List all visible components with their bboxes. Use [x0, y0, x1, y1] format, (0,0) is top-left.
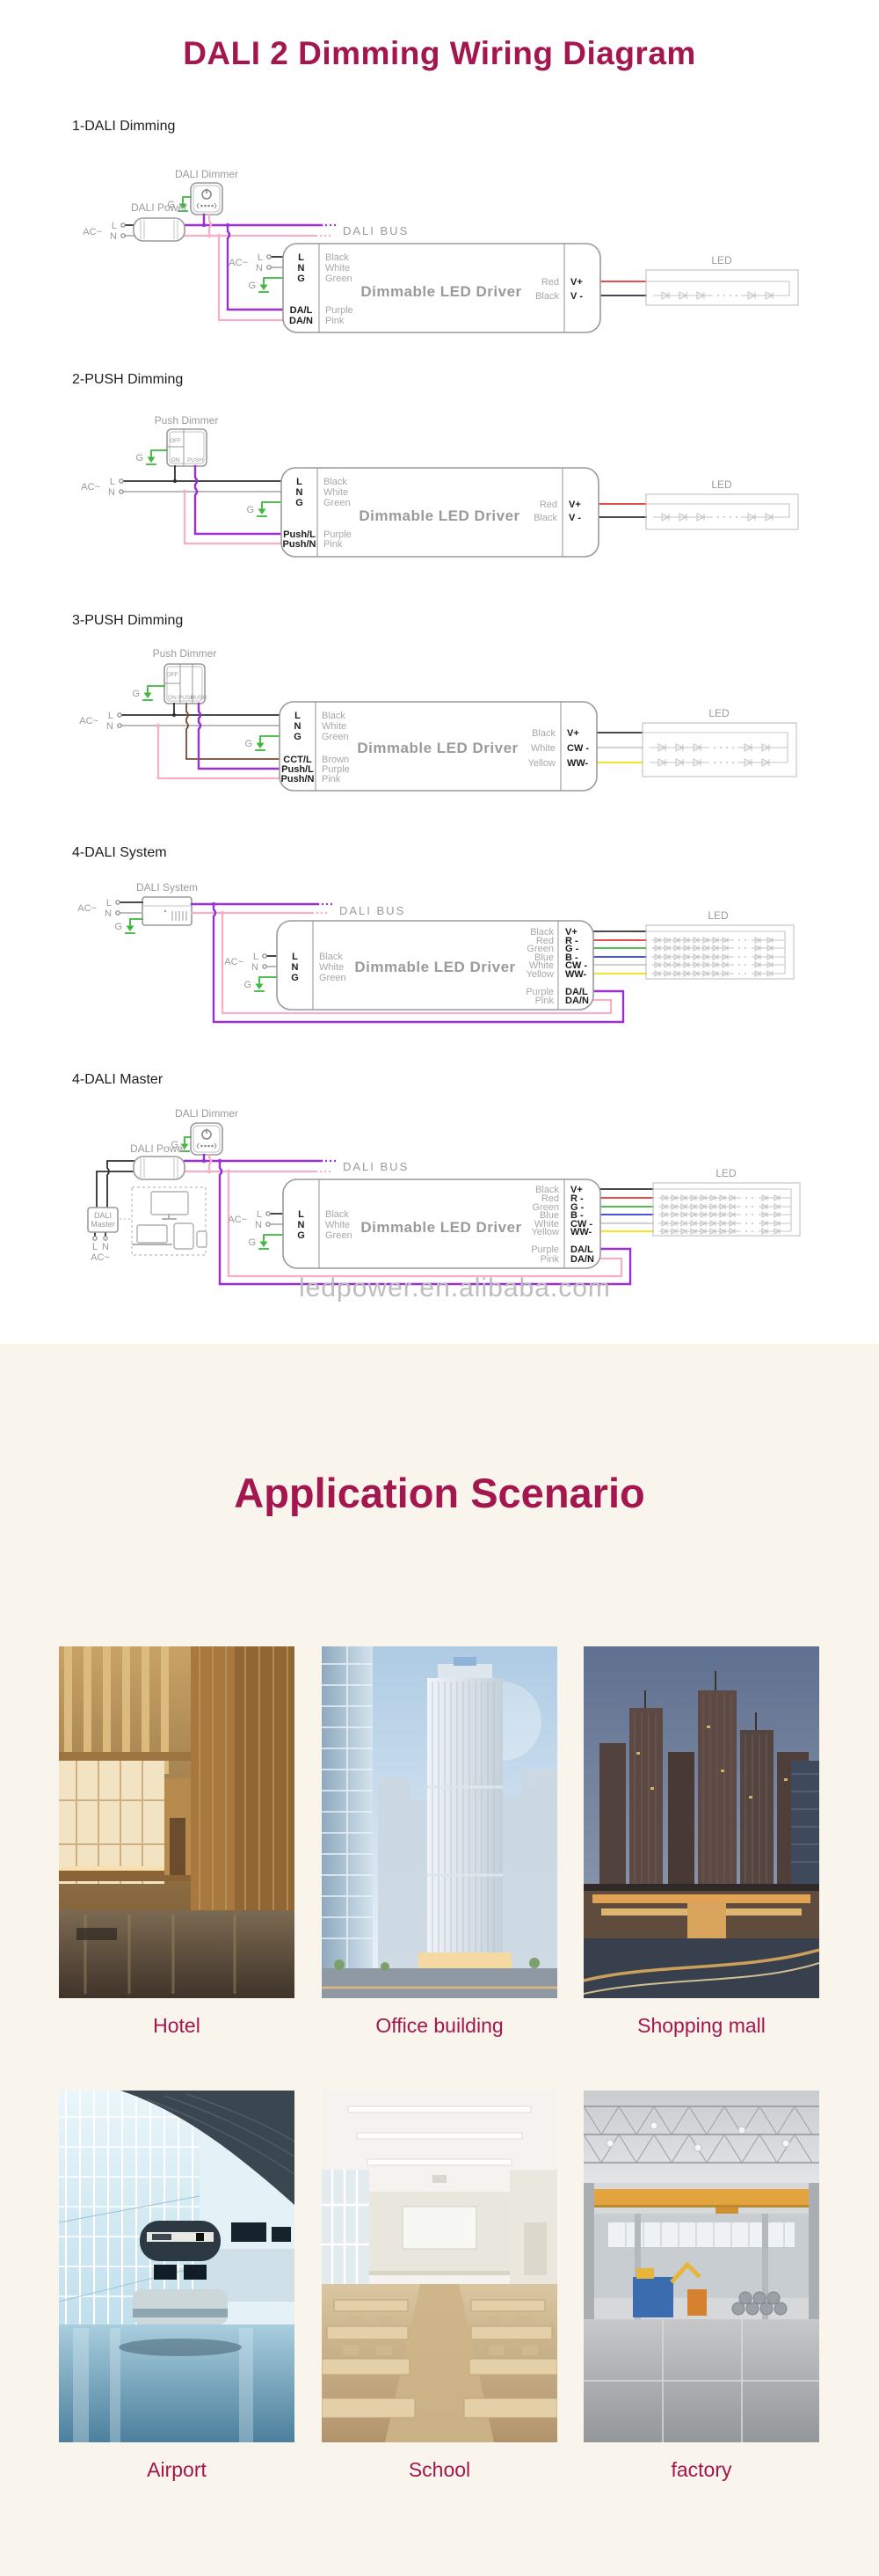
airport-photo [59, 2091, 294, 2442]
wire-name: Red [541, 277, 559, 288]
ground-label: G [243, 980, 251, 990]
dimmer-label: DALI Dimmer [175, 1107, 238, 1120]
wire-name: Black [535, 291, 559, 302]
dali-system-label: DALI System [136, 881, 198, 894]
ground-label: G [135, 453, 143, 463]
pin-label: L [298, 252, 304, 263]
led-driver: L N G Black White Green Dimmable LED Dri… [283, 1179, 600, 1268]
phone-icon [197, 1231, 207, 1247]
section-label-push-dimming-2: 2-PUSH Dimming [72, 372, 183, 388]
neutral-label: N [105, 909, 112, 919]
neutral-label: N [251, 962, 258, 973]
switch-push-label: PUSH [187, 457, 203, 463]
wire-name: Green [325, 274, 352, 284]
pin-label: V+ [569, 500, 581, 510]
ground-label: G [246, 505, 254, 515]
page: DALI 2 Dimming Wiring Diagram 1-DALI Dim… [0, 0, 879, 2576]
pin-label: DA/N [565, 996, 589, 1006]
led-strip: LED [643, 707, 796, 777]
line-label: L [106, 898, 112, 909]
power-label: DALI Power [131, 201, 187, 214]
wire-name: Pink [323, 539, 343, 550]
ground-label: G [114, 922, 122, 932]
wire-name: Black [323, 477, 347, 487]
pin-label: G [294, 732, 301, 742]
pin-label: CW - [567, 743, 589, 754]
school-photo [322, 2091, 557, 2442]
dimmer-label: Push Dimmer [153, 647, 217, 660]
shopping-mall-photo [584, 1646, 819, 1998]
pin-label: L [294, 711, 301, 721]
wire-name: Green [322, 732, 349, 742]
ac-label: AC~ [77, 903, 97, 914]
ac-label: AC~ [83, 227, 102, 237]
pin-label: DA/L [290, 305, 313, 316]
wire-name: White [531, 743, 556, 754]
wire-name: Green [323, 498, 351, 508]
neutral-label: N [106, 721, 113, 732]
pin-label: V+ [570, 277, 583, 288]
application-card-factory: factory [584, 2091, 819, 2482]
application-title: Application Scenario [0, 1469, 879, 1517]
driver-title: Dimmable LED Driver [359, 507, 519, 524]
led-label: LED [708, 707, 730, 719]
wire-name: Green [319, 973, 346, 983]
caption-school: School [322, 2458, 557, 2482]
push-dimmer-icon: OFF ON PUSH PUSH [164, 664, 207, 704]
bus-label: DALI BUS [343, 224, 409, 237]
caption-office-building: Office building [322, 2014, 557, 2038]
dali-system-icon [142, 897, 192, 925]
led-strip: LED [646, 909, 794, 979]
application-card-school: School [322, 2091, 557, 2482]
switch-on-label: ON [168, 695, 177, 701]
tablet-icon [174, 1223, 193, 1249]
bus-label: DALI BUS [339, 904, 405, 917]
line-label: L [253, 952, 258, 962]
pin-label: G [291, 973, 299, 983]
push-dimmer-icon: OFF ON PUSH [167, 429, 207, 466]
wire-name: Black [322, 711, 345, 721]
section-label-dali-master: 4-DALI Master [72, 1072, 163, 1088]
pin-label: WW- [567, 758, 589, 769]
pin-label: L [292, 952, 298, 962]
wire-name: Pink [541, 1254, 560, 1265]
led-strip: LED [646, 254, 798, 305]
neutral-label: N [108, 487, 115, 498]
wire-name: White [322, 721, 346, 732]
ac-label: AC~ [79, 716, 98, 726]
hotel-photo [59, 1646, 294, 1998]
application-card-airport: Airport [59, 2091, 294, 2482]
pin-label: V+ [567, 728, 579, 739]
office-building-photo [322, 1646, 557, 1998]
line-label: L [258, 252, 263, 263]
pin-label: Push/N [281, 774, 315, 784]
wire-name: Yellow [528, 758, 556, 769]
diagram-push-dimming-3: Push Dimmer OFF ON PUSH PUSH G L N [53, 638, 835, 827]
led-driver: L N G Black White Green CCT/L Push/L Pus… [280, 702, 597, 791]
driver-title: Dimmable LED Driver [357, 740, 518, 756]
application-card-hotel: Hotel [59, 1646, 294, 2038]
ground-label: G [248, 1237, 256, 1248]
led-label: LED [708, 909, 729, 922]
ac-label: AC~ [229, 258, 248, 268]
caption-shopping-mall: Shopping mall [584, 2014, 819, 2038]
led-strip: LED [646, 478, 798, 529]
pin-label: L [296, 477, 302, 487]
line-label: L [112, 221, 117, 231]
led-driver: L N G Black White Green DA/L DA/N Purple… [283, 244, 600, 332]
wire-name: Black [319, 952, 343, 962]
wire-name: Black [325, 1209, 349, 1220]
switch-off-label: OFF [167, 672, 178, 678]
page-title: DALI 2 Dimming Wiring Diagram [0, 35, 879, 72]
switch-push-label: PUSH [191, 695, 207, 701]
application-card-mall: Shopping mall [584, 1646, 819, 2038]
caption-hotel: Hotel [59, 2014, 294, 2038]
line-label: L [110, 477, 115, 487]
bus-label: DALI BUS [343, 1160, 409, 1173]
pin-label: N [296, 487, 303, 498]
pin-label: G [297, 274, 305, 284]
master-label: Master [91, 1220, 115, 1229]
diagram-dali-system: DALI System G L N AC~ DALI BUS [53, 875, 835, 1064]
neutral-label: N [110, 231, 117, 242]
application-section: Application Scenario [0, 1344, 879, 2576]
section-label-dali-system: 4-DALI System [72, 845, 167, 861]
led-label: LED [711, 478, 732, 491]
led-driver: L N G Black White Green Push/L Push/N Pu… [281, 468, 599, 557]
pin-label: V - [569, 513, 581, 523]
pin-label: N [292, 962, 299, 973]
diagram-dali-dimming: DALI Dimmer G DALI Power L N AC~ DALI BU… [53, 167, 835, 356]
monitor-stand-icon [163, 1215, 176, 1219]
driver-title: Dimmable LED Driver [354, 959, 515, 975]
pin-label: DA/N [289, 316, 313, 326]
wire-name: White [323, 487, 348, 498]
ac-label: AC~ [224, 957, 243, 967]
pin-label: DA/N [570, 1254, 594, 1265]
diagram-push-dimming-2: Push Dimmer OFF ON PUSH G L N AC~ [53, 400, 835, 589]
wire-name: Pink [535, 996, 555, 1006]
neutral-label: N [255, 1220, 262, 1230]
crane-beam [584, 2189, 819, 2205]
led-strip: LED [653, 1167, 800, 1236]
pin-label: Push/N [283, 539, 316, 550]
pin-label: WW- [565, 969, 587, 980]
pin-label: G [295, 498, 303, 508]
driver-title: Dimmable LED Driver [360, 283, 521, 300]
section-label-push-dimming-3: 3-PUSH Dimming [72, 613, 183, 629]
application-card-office: Office building [322, 1646, 557, 2038]
pin-label: G [297, 1230, 305, 1241]
wire-name: Black [532, 728, 556, 739]
monitor-icon [151, 1192, 188, 1215]
wire-name: Yellow [532, 1227, 559, 1237]
ground-label: G [244, 739, 252, 749]
ac-label: AC~ [81, 482, 100, 493]
ground-label: G [248, 281, 256, 291]
dali-master: DALI Master L N AC~ [88, 1208, 118, 1263]
power-label: DALI Power [130, 1142, 186, 1155]
master-label: DALI [94, 1211, 112, 1220]
ac-label: AC~ [91, 1252, 110, 1263]
led-driver: L N G Black White Green Dimmable LED Dri… [277, 921, 593, 1010]
neutral-label: N [102, 1242, 109, 1252]
ground-label: G [132, 689, 140, 699]
ac-label: AC~ [228, 1215, 247, 1225]
line-label: L [108, 711, 113, 721]
wire-name: Black [325, 252, 349, 263]
laptop-icon [137, 1225, 167, 1243]
caption-factory: factory [584, 2458, 819, 2482]
wire-name: Pink [322, 774, 341, 784]
wire-name: Yellow [527, 969, 554, 980]
section-label-dali-dimming: 1-DALI Dimming [72, 119, 175, 135]
watermark: ledpower.en.alibaba.com [299, 1273, 598, 1303]
neutral-label: N [256, 263, 263, 274]
pin-label: N [298, 263, 305, 274]
wire-name: White [319, 962, 344, 973]
factory-photo [584, 2091, 819, 2442]
pin-label: L [298, 1209, 304, 1220]
dimmer-label: Push Dimmer [155, 414, 219, 427]
pin-label: N [294, 721, 301, 732]
caption-airport: Airport [59, 2458, 294, 2482]
wire-name: White [325, 1220, 350, 1230]
driver-title: Dimmable LED Driver [360, 1219, 521, 1236]
control-devices [132, 1187, 207, 1255]
line-label: L [257, 1209, 262, 1220]
wire-name: Purple [325, 305, 353, 316]
wire-name: Green [325, 1230, 352, 1241]
wire-name: Red [540, 500, 557, 510]
led-label: LED [716, 1167, 737, 1179]
pin-label: V - [570, 291, 583, 302]
wire-name: Pink [325, 316, 345, 326]
switch-on-label: ON [171, 457, 180, 463]
switch-off-label: OFF [170, 438, 181, 444]
line-label: L [92, 1242, 98, 1252]
dimmer-label: DALI Dimmer [175, 168, 238, 180]
pin-label: WW- [570, 1227, 592, 1237]
wire-name: White [325, 263, 350, 274]
led-label: LED [711, 254, 732, 266]
wire-name: Black [534, 513, 557, 523]
pin-label: N [298, 1220, 305, 1230]
